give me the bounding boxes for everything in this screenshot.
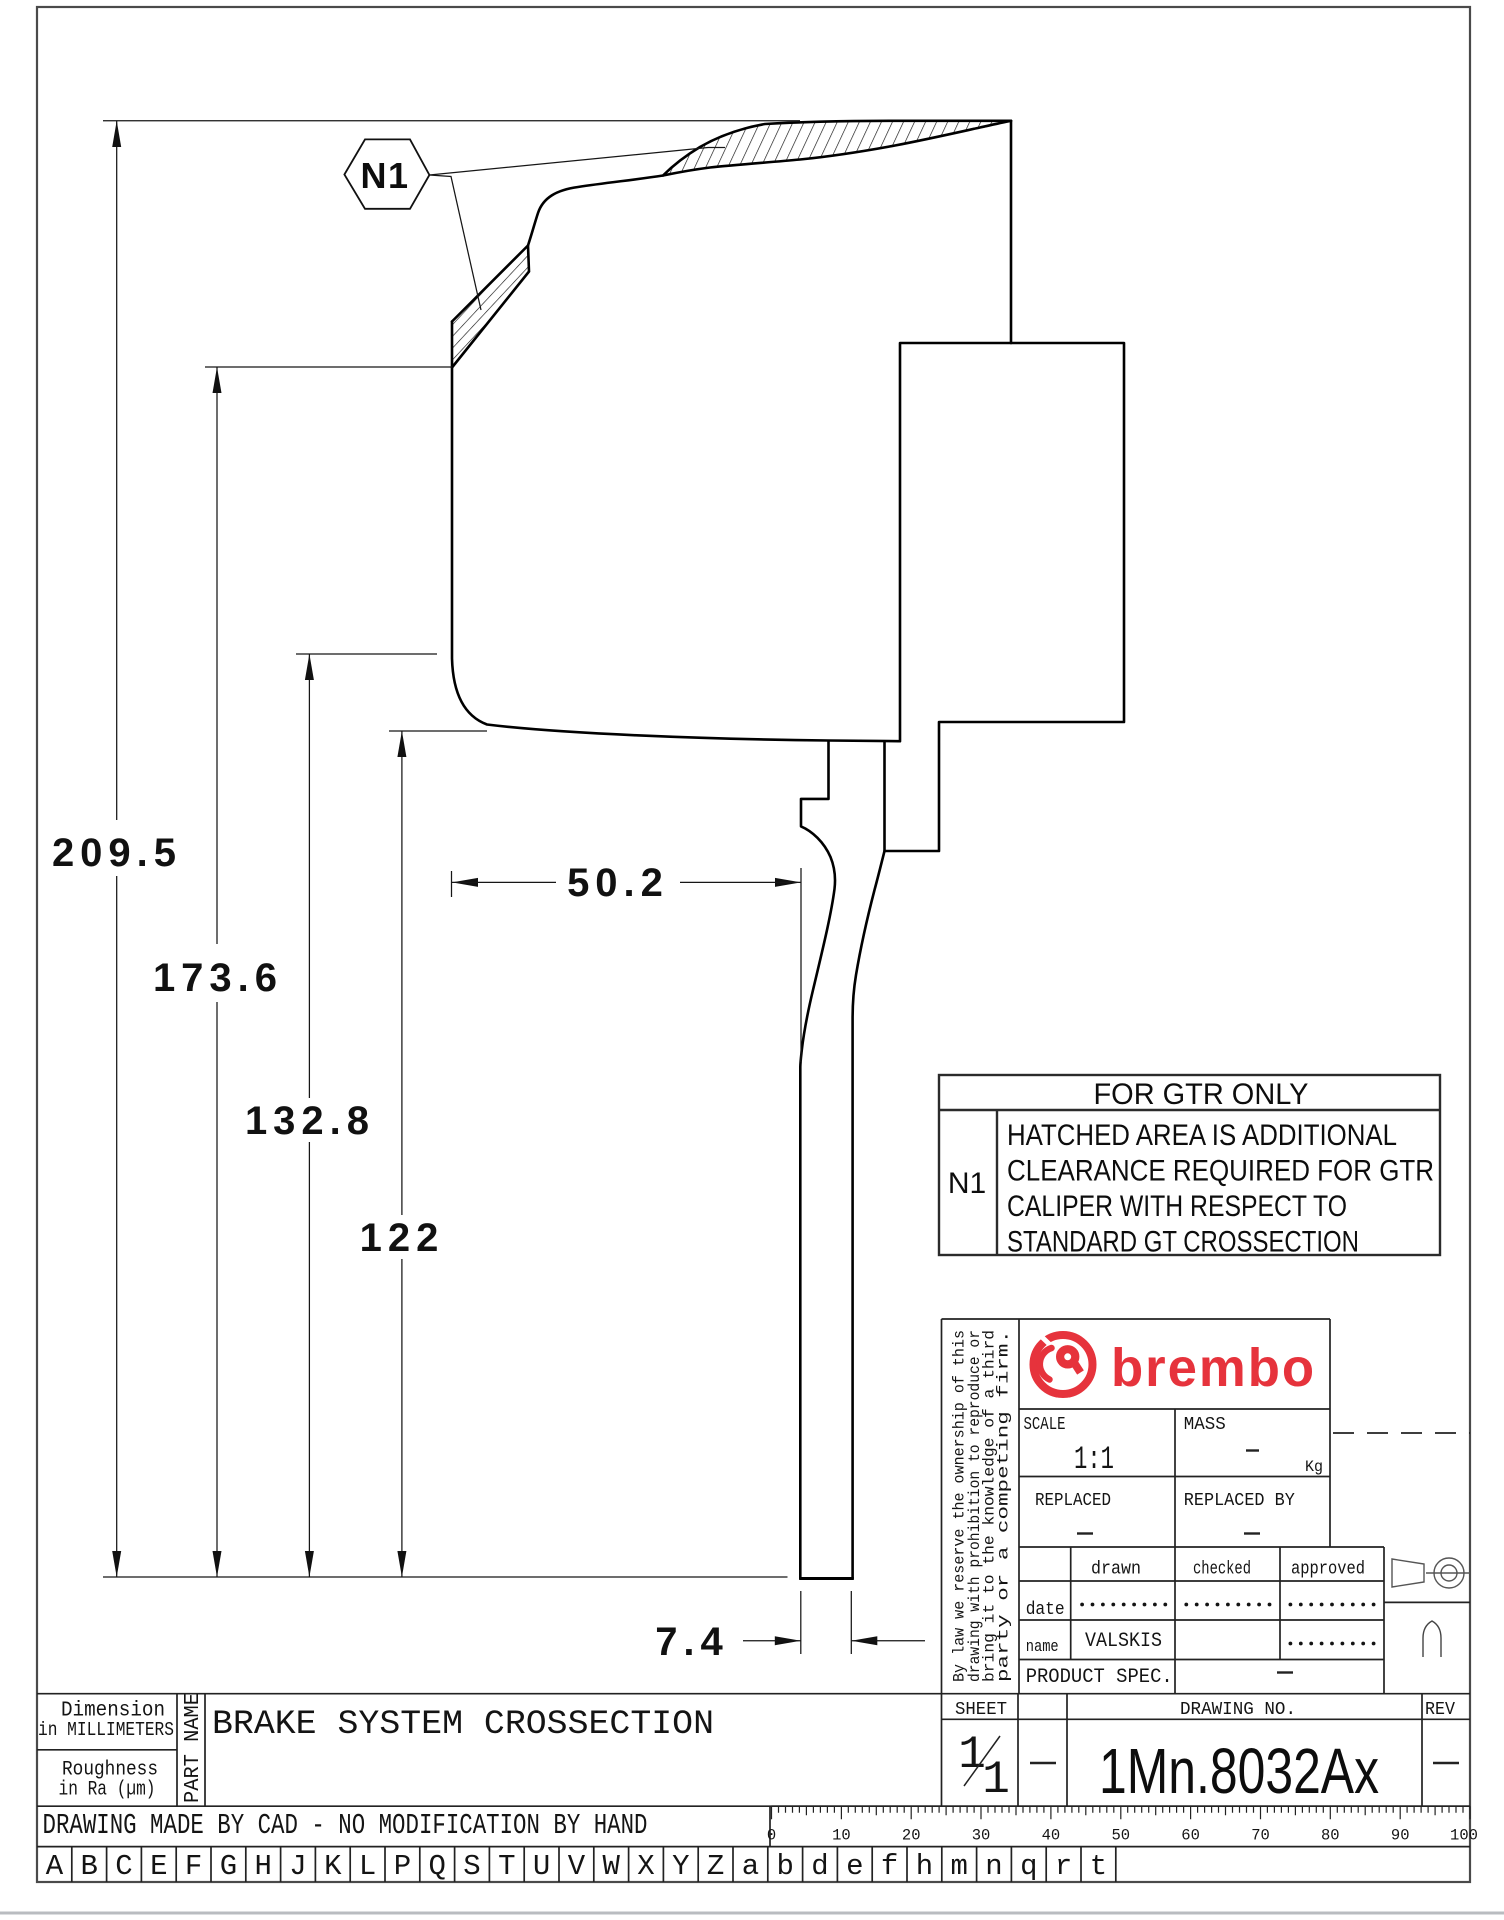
svg-text:L: L	[359, 1850, 376, 1883]
svg-text:n: n	[985, 1850, 1002, 1883]
svg-text:G: G	[220, 1850, 237, 1883]
svg-text:90: 90	[1391, 1827, 1410, 1845]
svg-text:approved: approved	[1291, 1560, 1365, 1580]
svg-text:brembo: brembo	[1111, 1338, 1316, 1398]
svg-text:C: C	[115, 1850, 132, 1883]
svg-text:S: S	[463, 1850, 480, 1883]
svg-text:30: 30	[972, 1827, 991, 1845]
svg-text:V: V	[568, 1850, 586, 1883]
svg-text:1:1: 1:1	[1074, 1441, 1114, 1478]
svg-text:Q: Q	[428, 1850, 445, 1883]
svg-text:20: 20	[902, 1827, 921, 1845]
svg-text:a: a	[742, 1850, 759, 1883]
svg-text:7.4: 7.4	[655, 1620, 729, 1664]
svg-text:10: 10	[832, 1827, 851, 1845]
svg-text:q: q	[1020, 1850, 1037, 1883]
svg-text:40: 40	[1042, 1827, 1061, 1845]
svg-text:REPLACED BY: REPLACED BY	[1184, 1491, 1295, 1511]
svg-text:U: U	[533, 1850, 550, 1883]
svg-text:m: m	[950, 1850, 967, 1883]
svg-text:P: P	[394, 1850, 411, 1883]
svg-text:50: 50	[1111, 1827, 1130, 1845]
svg-text:d: d	[811, 1850, 828, 1883]
svg-text:CALIPER WITH RESPECT TO: CALIPER WITH RESPECT TO	[1007, 1190, 1347, 1223]
svg-text:name: name	[1026, 1638, 1059, 1657]
svg-text:122: 122	[360, 1216, 445, 1260]
svg-text:drawn: drawn	[1091, 1560, 1141, 1580]
svg-text:REV: REV	[1425, 1700, 1455, 1720]
svg-text:50.2: 50.2	[567, 861, 669, 905]
svg-text:VALSKIS: VALSKIS	[1085, 1630, 1162, 1653]
svg-text:checked: checked	[1193, 1560, 1251, 1580]
svg-text:209.5: 209.5	[52, 831, 182, 875]
svg-text:BRAKE SYSTEM CROSSECTION: BRAKE SYSTEM CROSSECTION	[212, 1706, 714, 1744]
svg-text:80: 80	[1321, 1827, 1340, 1845]
svg-text:SCALE: SCALE	[1024, 1415, 1066, 1435]
svg-text:in Ra (µm): in Ra (µm)	[59, 1779, 156, 1802]
svg-text:Kg: Kg	[1305, 1458, 1323, 1476]
svg-text:173.6: 173.6	[153, 956, 283, 1000]
svg-text:T: T	[498, 1850, 515, 1883]
svg-text:CLEARANCE REQUIRED FOR GTR: CLEARANCE REQUIRED FOR GTR	[1007, 1155, 1434, 1188]
svg-text:N1: N1	[360, 155, 409, 196]
svg-text:60: 60	[1181, 1827, 1200, 1845]
svg-text:h: h	[916, 1850, 933, 1883]
svg-text:F: F	[185, 1850, 202, 1883]
svg-text:DRAWING NO.: DRAWING NO.	[1180, 1700, 1296, 1720]
svg-text:MASS: MASS	[1184, 1415, 1226, 1435]
svg-text:X: X	[637, 1850, 654, 1883]
svg-text:STANDARD GT CROSSECTION: STANDARD GT CROSSECTION	[1007, 1226, 1359, 1259]
svg-text:Z: Z	[707, 1850, 724, 1883]
svg-text:1Mn.8032Ax: 1Mn.8032Ax	[1099, 1735, 1379, 1807]
svg-text:party or a competing firm.: party or a competing firm.	[995, 1330, 1013, 1682]
svg-text:Y: Y	[672, 1850, 689, 1883]
svg-text:t: t	[1090, 1850, 1107, 1883]
svg-text:132.8: 132.8	[245, 1099, 375, 1143]
svg-text:1: 1	[982, 1754, 1010, 1806]
svg-text:e: e	[846, 1850, 863, 1883]
svg-text:in MILLIMETERS: in MILLIMETERS	[38, 1719, 174, 1741]
svg-text:J: J	[289, 1850, 306, 1883]
svg-text:A: A	[46, 1850, 64, 1883]
svg-text:N1: N1	[948, 1167, 986, 1200]
svg-text:DRAWING MADE BY CAD - NO MODIF: DRAWING MADE BY CAD - NO MODIFICATION BY…	[43, 1809, 648, 1842]
svg-text:H: H	[254, 1850, 271, 1883]
svg-text:70: 70	[1251, 1827, 1270, 1845]
svg-text:E: E	[150, 1850, 167, 1883]
svg-text:PART NAME: PART NAME	[182, 1693, 205, 1803]
svg-text:100: 100	[1450, 1827, 1478, 1845]
svg-text:date: date	[1026, 1600, 1065, 1620]
svg-text:r: r	[1055, 1850, 1072, 1883]
svg-text:b: b	[776, 1850, 793, 1883]
svg-text:B: B	[80, 1850, 97, 1883]
svg-text:SHEET: SHEET	[955, 1700, 1007, 1720]
svg-text:W: W	[602, 1850, 620, 1883]
svg-text:HATCHED AREA IS ADDITIONAL: HATCHED AREA IS ADDITIONAL	[1007, 1119, 1397, 1152]
svg-text:PRODUCT SPEC.: PRODUCT SPEC.	[1026, 1666, 1173, 1689]
svg-text:0: 0	[767, 1827, 776, 1845]
svg-text:K: K	[324, 1850, 342, 1883]
svg-text:FOR GTR ONLY: FOR GTR ONLY	[1094, 1078, 1309, 1111]
svg-text:REPLACED: REPLACED	[1035, 1491, 1111, 1511]
svg-text:f: f	[881, 1850, 898, 1883]
